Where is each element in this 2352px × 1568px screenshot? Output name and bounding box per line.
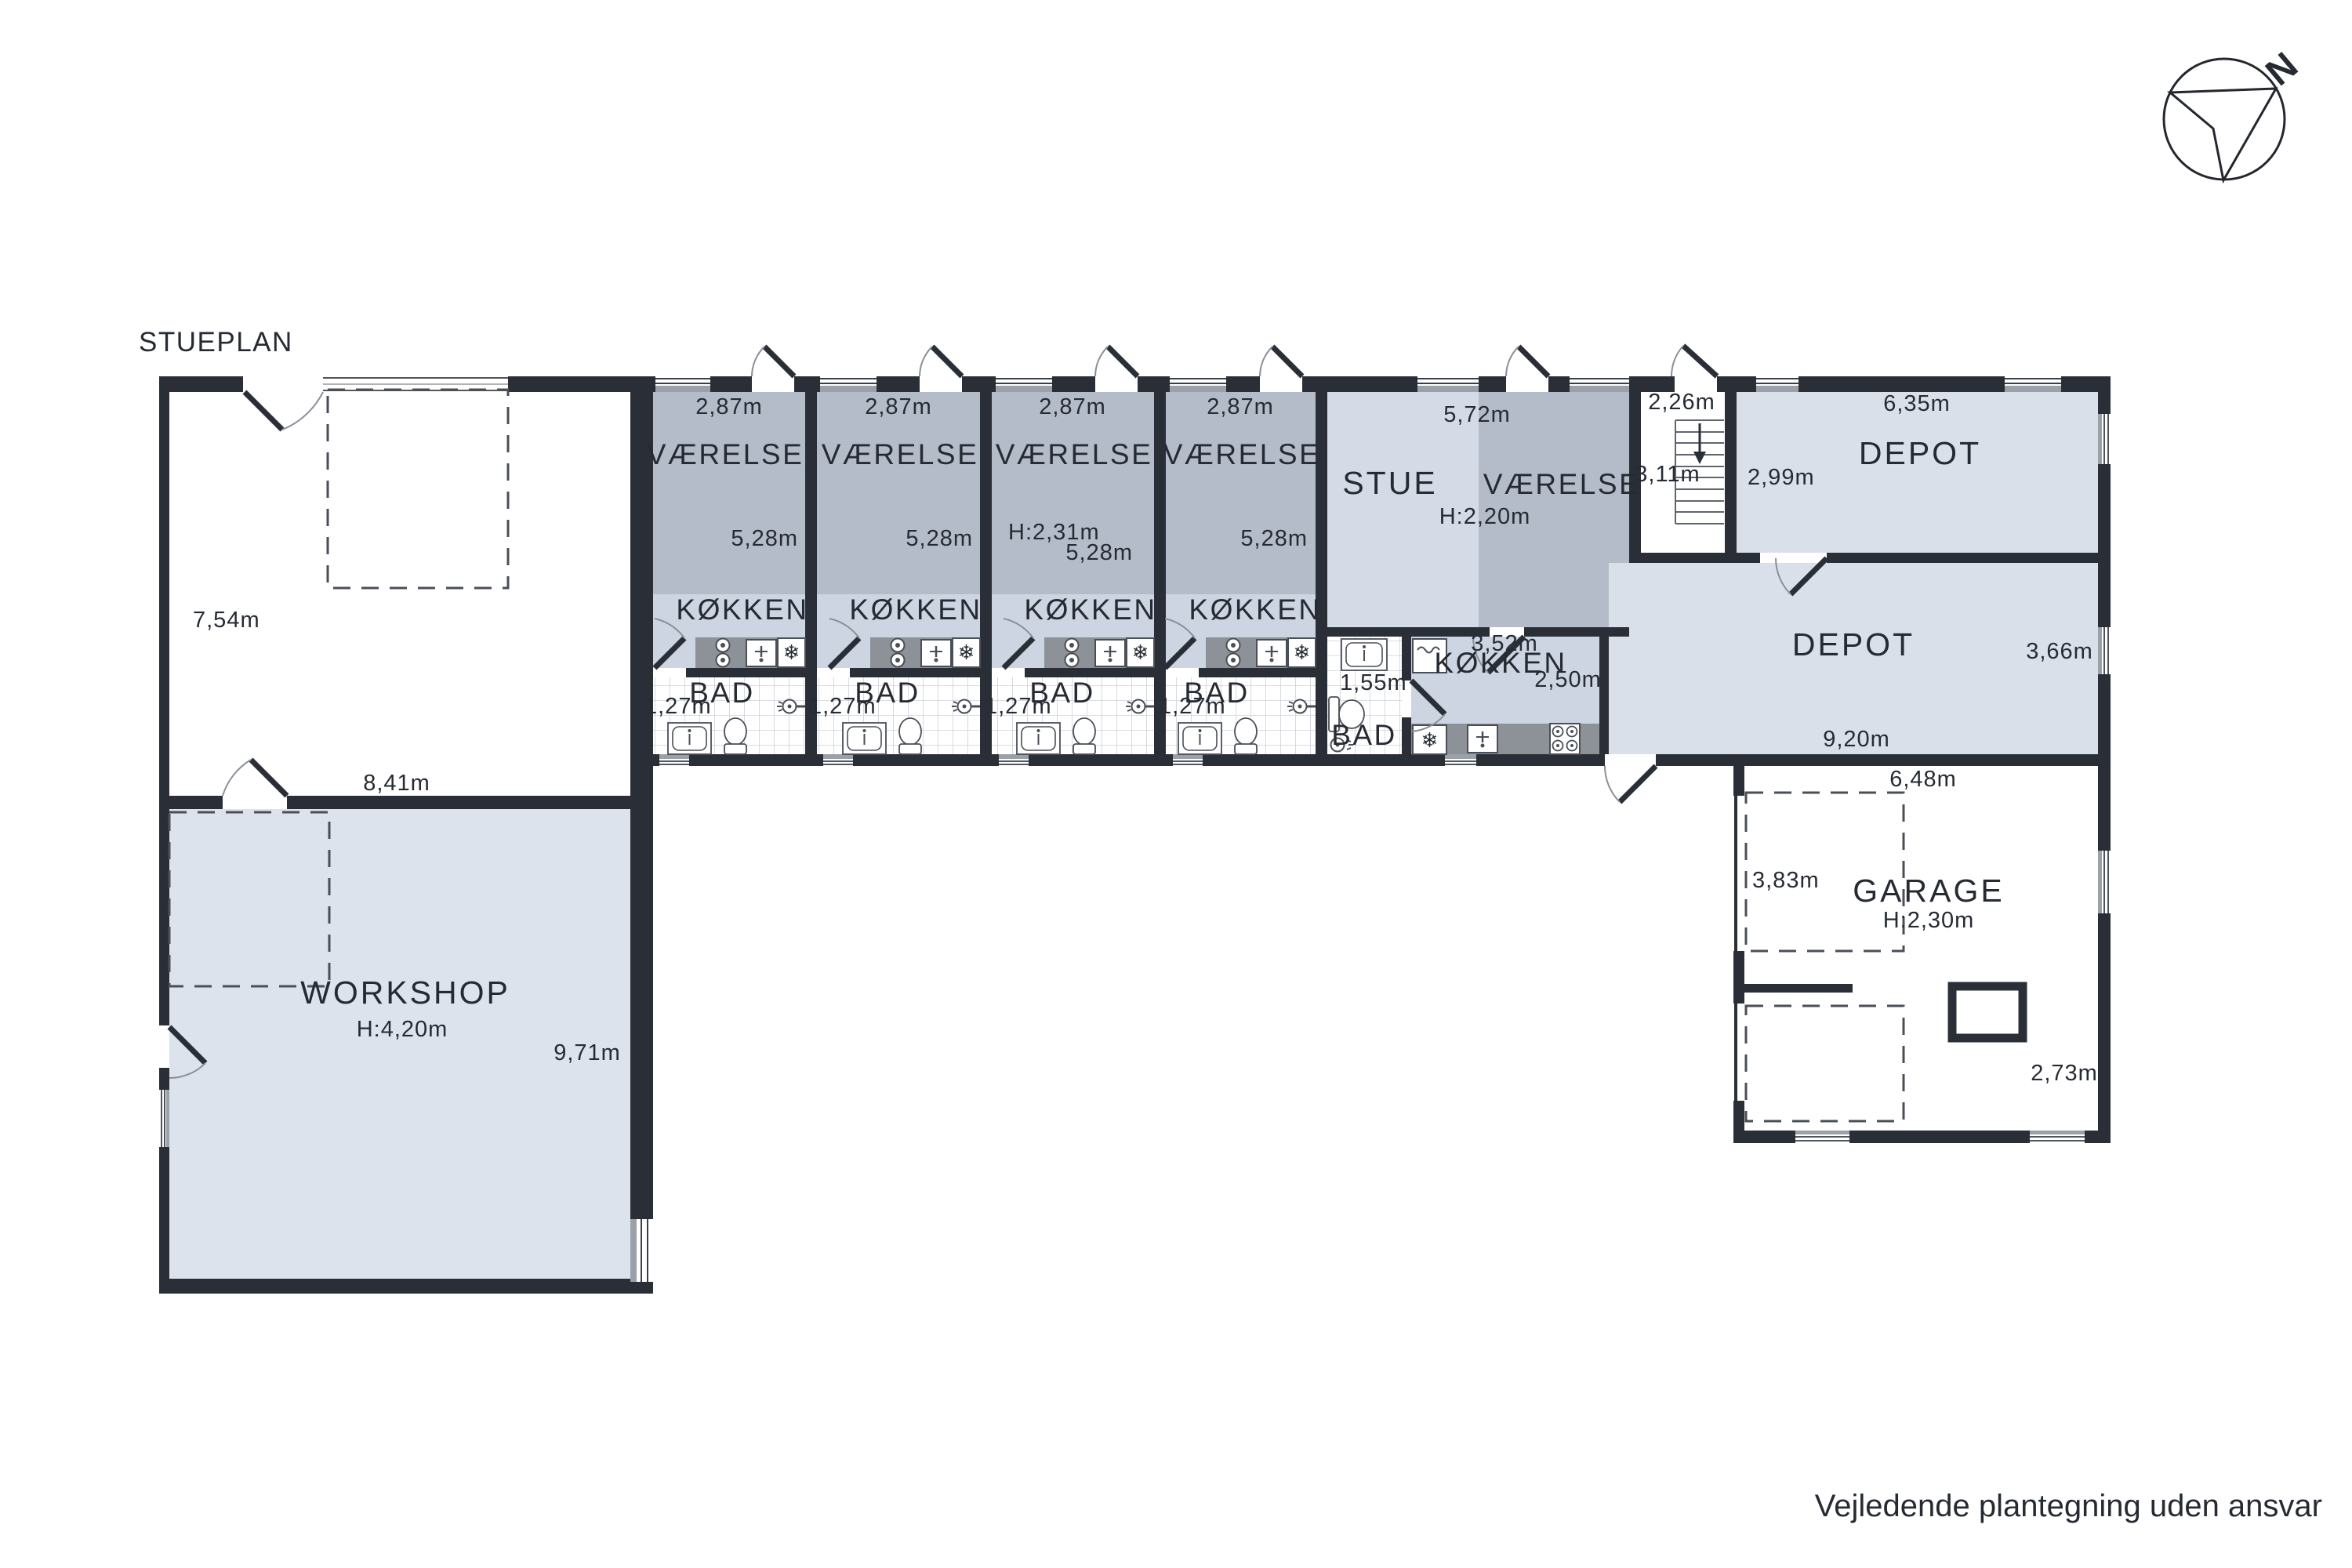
- dim-hall-height: 7,54m: [193, 608, 260, 633]
- dim-hall-width: 8,41m: [363, 771, 430, 796]
- label-unit4-room: VÆRELSE: [1163, 438, 1321, 470]
- floorplan-page: ❄ ❄ ❄: [0, 0, 2352, 1568]
- dim-stue-ceiling: H:2,20m: [1439, 504, 1531, 529]
- dim-stairs-depth: 3,11m: [1635, 462, 1700, 487]
- label-bad-5: BAD: [1331, 719, 1397, 751]
- disclaimer-text: Vejledende plantegning uden ansvar: [1815, 1489, 2322, 1523]
- snowflake-icon: ❄: [783, 641, 800, 664]
- label-unit1-kitchen: KØKKEN: [676, 593, 808, 626]
- dim-stairs-width: 2,26m: [1648, 390, 1715, 415]
- label-depot-bottom: DEPOT: [1792, 626, 1915, 662]
- dim-garage-depth: 3,83m: [1752, 868, 1820, 893]
- label-unit3-kitchen: KØKKEN: [1024, 593, 1156, 626]
- snowflake-icon: ❄: [958, 641, 975, 664]
- dim-unit2-depth: 5,28m: [906, 526, 973, 551]
- north-label: N: [2258, 44, 2306, 94]
- label-unit2-kitchen: KØKKEN: [849, 593, 982, 626]
- dim-workshop-depth: 9,71m: [554, 1040, 621, 1065]
- room-main-hall: [169, 392, 630, 796]
- room-vaerelse-2: [817, 392, 980, 594]
- dim-garage-ceiling: H:2,30m: [1883, 908, 1975, 933]
- dim-depot-bottom-width: 9,20m: [1823, 727, 1890, 752]
- dim-kokken5-depth: 2,50m: [1534, 667, 1602, 692]
- wall-workshop-bottom: [159, 1279, 653, 1294]
- dim-unit2-width: 2,87m: [865, 394, 932, 419]
- label-unit4-kitchen: KØKKEN: [1189, 593, 1321, 626]
- label-stue: STUE: [1342, 465, 1437, 501]
- wall-garage-stub: [1738, 984, 1853, 993]
- snowflake-icon: ❄: [1294, 641, 1311, 664]
- label-depot-top: DEPOT: [1859, 435, 1981, 471]
- dim-unit4-width: 2,87m: [1207, 394, 1274, 419]
- page-title: STUEPLAN: [139, 327, 293, 358]
- dim-garage-width: 6,48m: [1889, 767, 1957, 792]
- wall-leftwing-right: [630, 392, 653, 1294]
- label-unit1-room: VÆRELSE: [647, 438, 804, 470]
- compass-icon: N: [2164, 44, 2307, 180]
- dim-workshop-ceiling: H:4,20m: [357, 1017, 448, 1042]
- label-garage: GARAGE: [1853, 873, 2004, 909]
- dim-unit1-depth: 5,28m: [731, 526, 798, 551]
- snowflake-icon: ❄: [1421, 728, 1439, 752]
- snowflake-icon: ❄: [1132, 641, 1149, 664]
- dim-depot-bottom-depth: 3,66m: [2026, 639, 2093, 664]
- floorplan-drawing: ❄ ❄ ❄: [0, 0, 2352, 1568]
- dim-stue-width: 5,72m: [1443, 402, 1511, 427]
- dim-garage-width2: 2,73m: [2031, 1061, 2098, 1086]
- label-vaerelse-5: VÆRELSE: [1483, 468, 1641, 500]
- toilet-icon: [724, 718, 746, 745]
- dim-bad5-width: 1,55m: [1340, 670, 1407, 695]
- garage-chimney: [1952, 986, 2023, 1038]
- dim-unit1-width: 2,87m: [695, 394, 763, 419]
- dim-unit2-bath: 1,27m: [809, 694, 877, 719]
- wall-units-bottom: [653, 754, 2111, 766]
- room-fills: [169, 392, 2098, 1279]
- room-vaerelse-4: [1166, 392, 1316, 594]
- label-unit3-room: VÆRELSE: [996, 438, 1153, 470]
- dim-unit4-bath: 1,27m: [1159, 694, 1226, 719]
- dim-unit3-width: 2,87m: [1039, 394, 1106, 419]
- dim-unit3-depth: 5,28m: [1065, 540, 1133, 565]
- dim-depot-top-width: 6,35m: [1883, 391, 1951, 416]
- dim-depot-top-depth: 2,99m: [1748, 465, 1815, 490]
- label-unit2-room: VÆRELSE: [822, 438, 979, 470]
- dim-unit1-bath: 1,27m: [644, 694, 712, 719]
- label-workshop: WORKSHOP: [300, 975, 510, 1011]
- dim-unit3-bath: 1,27m: [985, 694, 1052, 719]
- room-vaerelse-1: [653, 392, 805, 594]
- dim-unit4-depth: 5,28m: [1240, 526, 1308, 551]
